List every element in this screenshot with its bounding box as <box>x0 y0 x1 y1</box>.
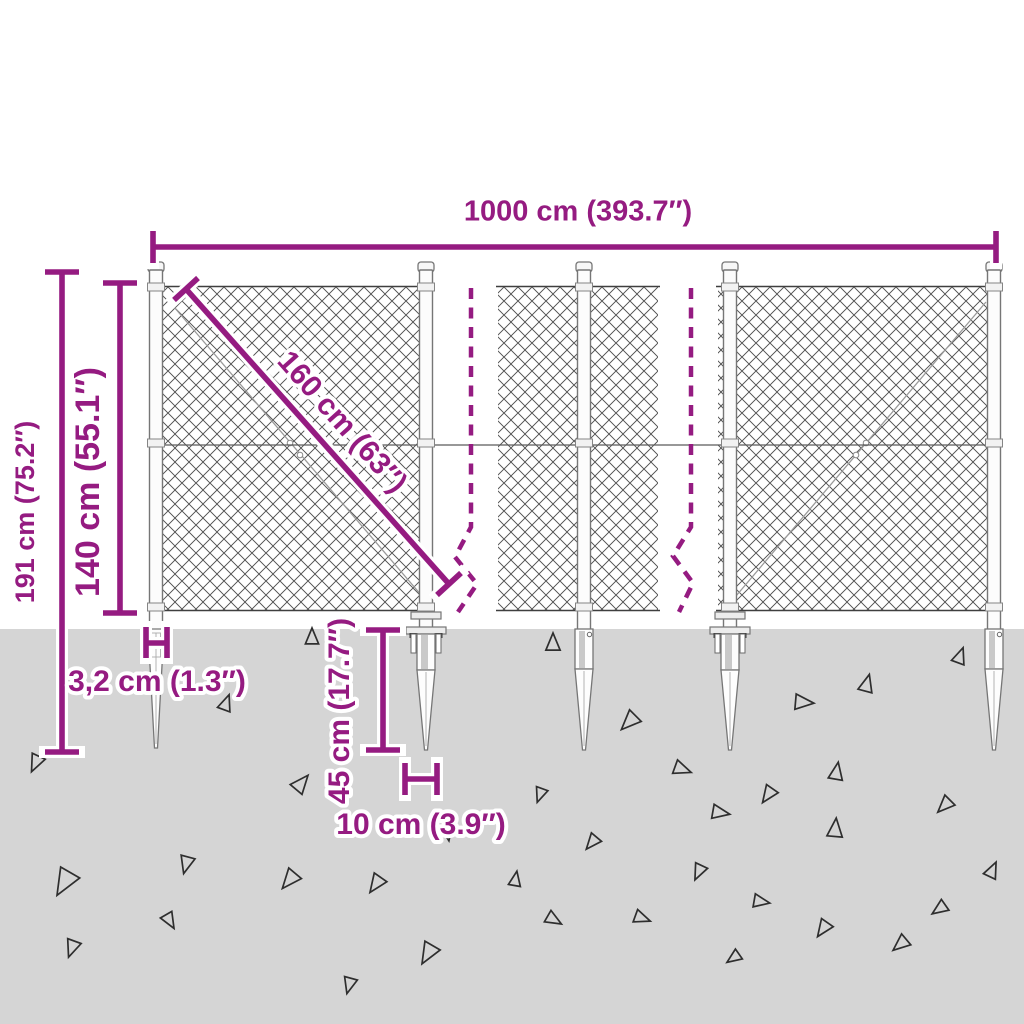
fence-post <box>576 262 593 634</box>
post-width-label: 3,2 cm (1.3″) <box>68 665 246 698</box>
fence-height-label: 140 cm (55.1″) <box>69 367 107 597</box>
fence-dimension-diagram: 1000 cm (393.7″) 191 cm (75.2″) 140 cm (… <box>0 0 1024 1024</box>
fence-post <box>722 262 739 634</box>
mesh-panel-right <box>718 286 988 611</box>
fence-post <box>986 262 1003 634</box>
anchor-length-label: 45 cm (17.7″) <box>323 618 356 804</box>
total-height-label: 191 cm (75.2″) <box>10 421 40 604</box>
anchor-width-label: 10 cm (3.9″) <box>336 808 505 841</box>
fence-post <box>148 262 165 634</box>
diagram-canvas: 1000 cm (393.7″) 191 cm (75.2″) 140 cm (… <box>0 0 1024 1024</box>
total-width-label: 1000 cm (393.7″) <box>464 196 692 228</box>
fence-post <box>418 262 435 634</box>
